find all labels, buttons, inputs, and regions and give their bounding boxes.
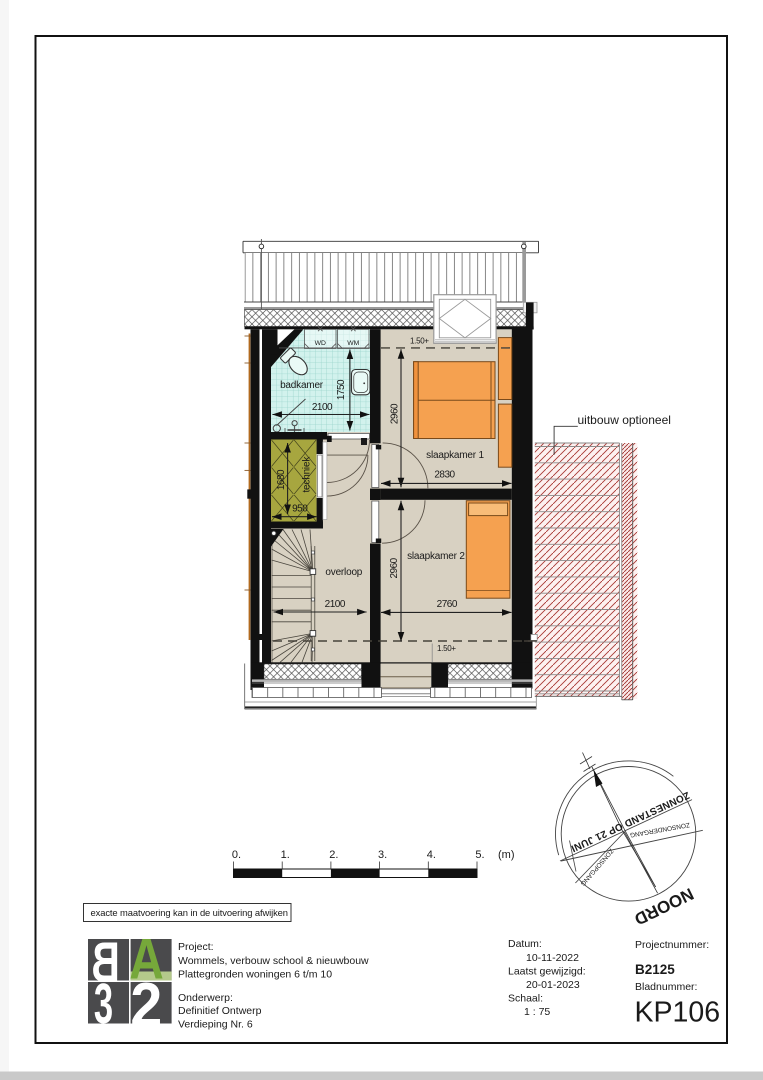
- svg-text:Plattegronden woningen 6 t/m 1: Plattegronden woningen 6 t/m 10: [178, 969, 332, 981]
- svg-text:2: 2: [130, 970, 162, 1040]
- svg-text:Datum:: Datum:: [508, 938, 542, 950]
- svg-text:overloop: overloop: [325, 567, 362, 578]
- svg-text:WM: WM: [347, 340, 359, 347]
- svg-text:1680: 1680: [276, 469, 287, 490]
- svg-text:Schaal:: Schaal:: [508, 993, 543, 1005]
- svg-text:B2125: B2125: [635, 962, 675, 977]
- svg-text:2760: 2760: [437, 599, 458, 610]
- svg-text:1.50+: 1.50+: [437, 644, 456, 653]
- svg-text:4.: 4.: [427, 849, 436, 861]
- svg-text:3: 3: [94, 972, 113, 1035]
- svg-text:20-01-2023: 20-01-2023: [526, 979, 580, 991]
- svg-text:2100: 2100: [312, 402, 333, 413]
- svg-text:1.50+: 1.50+: [410, 337, 429, 346]
- svg-text:techniek: techniek: [301, 456, 312, 493]
- svg-text:Verdieping Nr. 6: Verdieping Nr. 6: [178, 1019, 253, 1031]
- svg-text:2100: 2100: [325, 599, 346, 610]
- svg-text:uitbouw optioneel: uitbouw optioneel: [578, 413, 671, 427]
- svg-text:3.: 3.: [378, 849, 387, 861]
- svg-text:2.: 2.: [329, 849, 338, 861]
- svg-text:slaapkamer 2: slaapkamer 2: [407, 551, 465, 562]
- svg-text:badkamer: badkamer: [280, 380, 324, 391]
- svg-text:950: 950: [292, 504, 308, 515]
- svg-text:Wommels, verbouw school & nieu: Wommels, verbouw school & nieuwbouw: [178, 955, 369, 967]
- svg-text:Onderwerp:: Onderwerp:: [178, 992, 233, 1004]
- svg-text:1.: 1.: [281, 849, 290, 861]
- svg-text:slaapkamer 1: slaapkamer 1: [426, 450, 484, 461]
- svg-text:1750: 1750: [336, 379, 347, 400]
- svg-text:10-11-2022: 10-11-2022: [526, 952, 579, 964]
- svg-text:exacte maatvoering kan in de u: exacte maatvoering kan in de uitvoering …: [91, 907, 288, 918]
- svg-text:Projectnummer:: Projectnummer:: [635, 939, 709, 951]
- svg-text:5.: 5.: [475, 849, 484, 861]
- svg-text:(m): (m): [498, 849, 515, 861]
- svg-text:Laatst gewijzigd:: Laatst gewijzigd:: [508, 966, 586, 978]
- svg-text:Bladnummer:: Bladnummer:: [635, 981, 697, 993]
- svg-text:2960: 2960: [389, 403, 400, 424]
- svg-text:0.: 0.: [232, 849, 241, 861]
- svg-text:Definitief Ontwerp: Definitief Ontwerp: [178, 1005, 262, 1017]
- svg-text:2830: 2830: [434, 470, 455, 481]
- svg-text:KP106: KP106: [635, 997, 721, 1029]
- svg-text:WD: WD: [315, 340, 326, 347]
- svg-text:1 : 75: 1 : 75: [524, 1006, 550, 1018]
- svg-text:Project:: Project:: [178, 941, 214, 953]
- svg-text:2960: 2960: [389, 557, 400, 578]
